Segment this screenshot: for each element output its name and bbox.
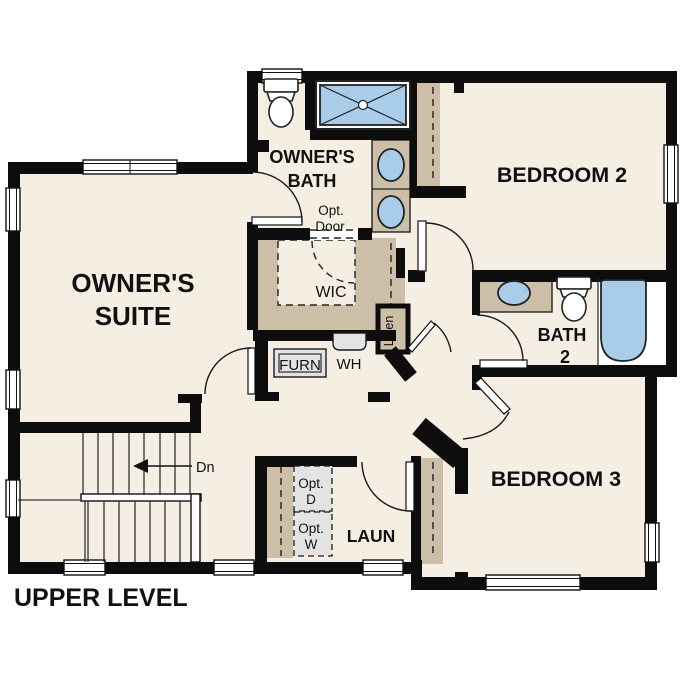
bath2-label-1: BATH [538, 325, 587, 345]
laundry-cabinet [267, 463, 293, 558]
double-sink-icon [372, 149, 410, 228]
wall-furn-west [255, 330, 268, 394]
window [664, 145, 678, 203]
wall-suite-east-lower [247, 222, 258, 330]
floor-plan: OWNER'S SUITE OWNER'S BATH Opt. Door WIC… [0, 0, 687, 687]
owners-suite-label-2: SUITE [95, 301, 172, 331]
owners-bath-label-2: BATH [288, 171, 337, 191]
stair-stringer-h [81, 494, 201, 501]
window [83, 160, 177, 174]
wall-wic-east [396, 248, 405, 278]
floor-plan-page: OWNER'S SUITE OWNER'S BATH Opt. Door WIC… [0, 0, 687, 687]
plan-title: UPPER LEVEL [14, 584, 188, 612]
opt-dryer-label-1: Opt. [298, 476, 324, 491]
window [214, 560, 254, 575]
window [363, 560, 403, 575]
wall-right-upper [666, 71, 677, 377]
window [645, 523, 659, 562]
window [6, 480, 20, 517]
opt-door-label-2: Door [315, 219, 345, 234]
shower-icon [316, 81, 410, 129]
window [6, 370, 20, 409]
bedroom3-closet [421, 458, 443, 564]
bedroom3-label: BEDROOM 3 [491, 467, 621, 491]
wall-laundry-west [255, 456, 267, 562]
wall-wic-south [253, 330, 396, 341]
wall-toilet-stub [247, 140, 269, 152]
window [486, 575, 580, 590]
window [64, 560, 105, 575]
bath2-label-2: 2 [560, 347, 570, 367]
wic-label: WIC [315, 284, 346, 301]
stair-stringer-v [191, 494, 200, 562]
laundry-label: LAUN [347, 526, 396, 546]
water-heater-box [333, 333, 366, 350]
bathtub-icon [598, 278, 646, 365]
owners-suite-label-1: OWNER'S [71, 268, 194, 298]
wall-bedroom2-closet-tab [454, 71, 464, 93]
opt-washer-label-1: Opt. [298, 521, 324, 536]
opt-door-label-1: Opt. [318, 203, 344, 218]
water-heater-label: WH [337, 356, 362, 373]
wall-half-chunk [368, 392, 390, 402]
bedroom2-closet [417, 83, 440, 186]
wall-bedroom2-west [410, 71, 417, 188]
wall-furn-corner [255, 392, 279, 401]
wall-bath-south-b [358, 228, 372, 240]
wall-bedroom3-closet-stub2 [455, 572, 468, 580]
wall-suite-south [16, 422, 196, 433]
furnace-label: FURN [279, 357, 321, 374]
sink-icon [498, 281, 530, 305]
linen-label: Linen [382, 316, 396, 347]
wall-bath-south-a [258, 228, 310, 240]
stairs-down-label: Dn [196, 460, 215, 476]
opt-dryer-label-2: D [306, 492, 316, 507]
window [6, 188, 20, 231]
wall-bedroom2-bottom-stub [408, 270, 425, 282]
wall-bedroom2-closet-bottom [410, 186, 466, 198]
opt-washer-label-2: W [305, 537, 318, 552]
wall-suite-east-upper [247, 71, 258, 172]
bedroom2-label: BEDROOM 2 [497, 163, 627, 187]
wall-bath2-west [472, 278, 480, 315]
owners-bath-label-1: OWNER'S [269, 147, 354, 167]
